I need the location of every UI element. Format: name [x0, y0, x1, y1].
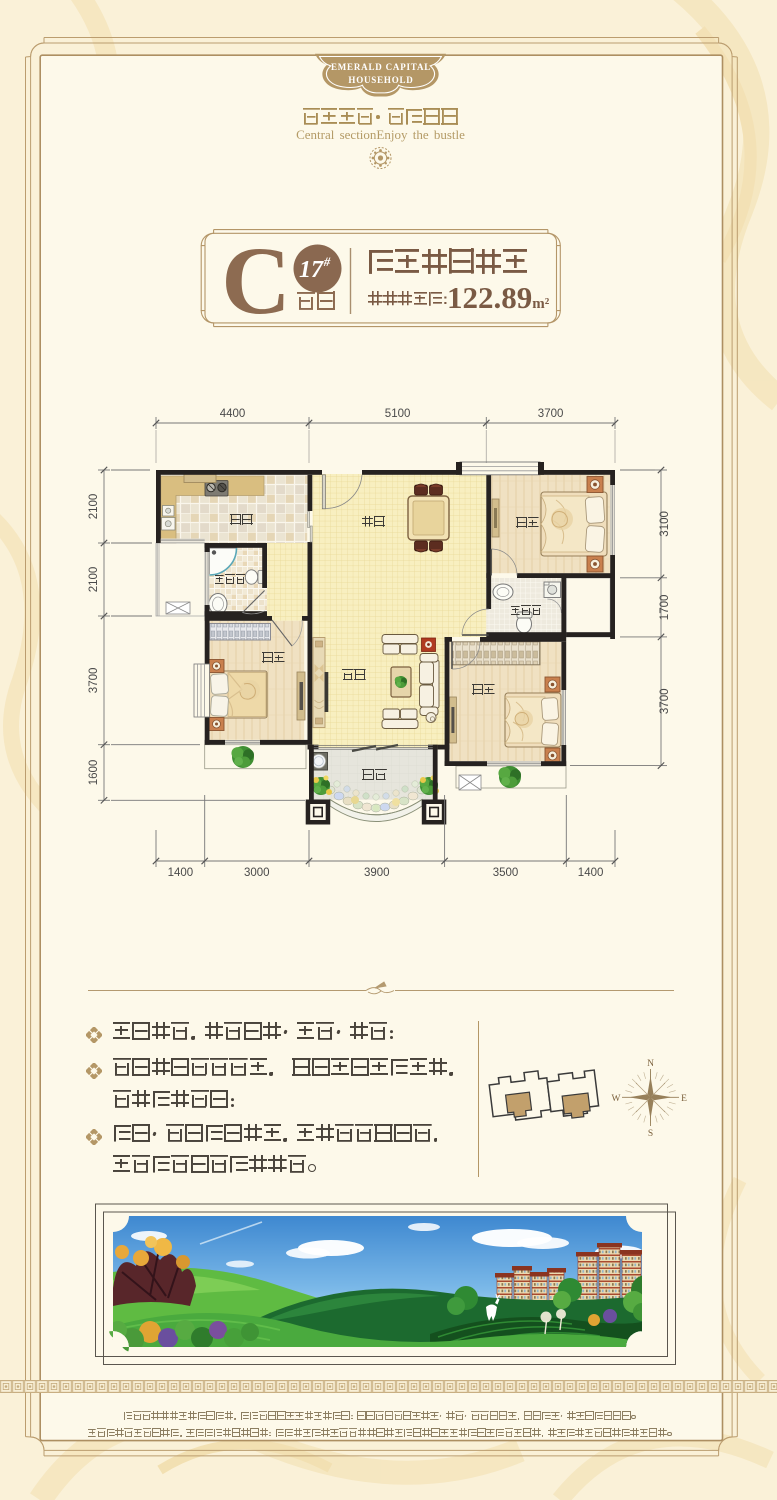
svg-text:3100: 3100	[659, 511, 671, 537]
svg-text:3000: 3000	[244, 867, 270, 879]
svg-text:3500: 3500	[493, 867, 519, 879]
svg-text:3700: 3700	[88, 668, 100, 694]
svg-text:1400: 1400	[578, 867, 604, 879]
svg-text:S: S	[648, 1129, 653, 1139]
svg-text:N: N	[647, 1059, 654, 1069]
svg-text:1700: 1700	[659, 595, 671, 621]
svg-text:E: E	[681, 1094, 687, 1104]
svg-text:W: W	[612, 1094, 621, 1104]
svg-text:5100: 5100	[385, 408, 411, 420]
svg-text:3700: 3700	[538, 408, 564, 420]
svg-text:2100: 2100	[88, 567, 100, 593]
svg-text:1400: 1400	[168, 867, 194, 879]
svg-text:1600: 1600	[88, 760, 100, 786]
svg-text:3700: 3700	[659, 689, 671, 715]
svg-text:2100: 2100	[88, 494, 100, 520]
svg-text:4400: 4400	[220, 408, 246, 420]
svg-text:C: C	[221, 228, 290, 334]
svg-text:17: 17	[299, 257, 324, 283]
svg-text:#: #	[323, 254, 331, 269]
svg-text:3900: 3900	[364, 867, 390, 879]
